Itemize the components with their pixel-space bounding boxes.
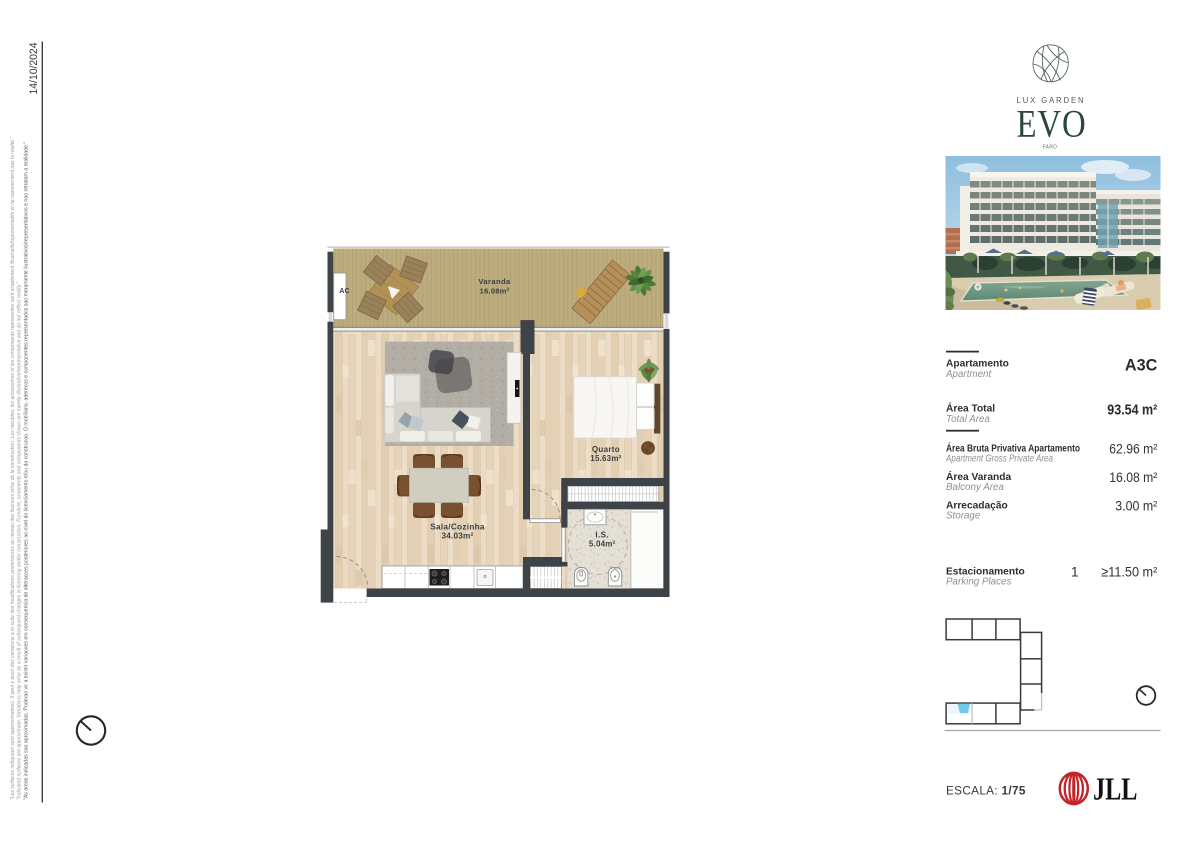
svg-text:Varanda: Varanda — [478, 277, 511, 286]
svg-text:15.63m²: 15.63m² — [590, 454, 621, 463]
svg-text:62.96 m²: 62.96 m² — [1109, 441, 1157, 457]
svg-text:Sala/Cozinha: Sala/Cozinha — [430, 523, 485, 532]
svg-text:1: 1 — [1071, 564, 1079, 580]
svg-text:Storage: Storage — [946, 511, 981, 522]
svg-text:"Indicated surfaces are approx: "Indicated surfaces are approximate. Var… — [17, 282, 23, 800]
svg-text:16.08m²: 16.08m² — [480, 287, 510, 296]
svg-text:Apartment Gross Private Area: Apartment Gross Private Area — [945, 454, 1053, 465]
svg-text:Total Area: Total Area — [946, 414, 990, 425]
svg-text:≥11.50 m²: ≥11.50 m² — [1101, 564, 1157, 580]
svg-text:AC: AC — [339, 286, 349, 295]
svg-text:3.00 m²: 3.00 m² — [1115, 498, 1157, 514]
svg-text:ESCALA: 1/75: ESCALA: 1/75 — [946, 784, 1026, 798]
svg-text:Balcony Area: Balcony Area — [946, 482, 1004, 493]
svg-text:16.08 m²: 16.08 m² — [1109, 469, 1157, 485]
svg-text:JLL: JLL — [1093, 772, 1138, 807]
svg-text:14/10/2024: 14/10/2024 — [28, 43, 40, 95]
svg-text:FARO: FARO — [1043, 145, 1058, 151]
svg-text:93.54 m²: 93.54 m² — [1107, 403, 1157, 419]
svg-text:"Les surfaces indiquees sont a: "Les surfaces indiquees sont approximati… — [10, 137, 16, 800]
svg-text:Apartment: Apartment — [945, 369, 992, 380]
svg-text:"As areas indicadas sao aproxi: "As areas indicadas sao aproximadas. Pod… — [24, 142, 30, 800]
svg-text:Quarto: Quarto — [592, 445, 620, 454]
svg-text:A3C: A3C — [1125, 357, 1158, 375]
svg-text:Área Total: Área Total — [946, 402, 995, 415]
svg-text:Parking Places: Parking Places — [946, 577, 1011, 588]
svg-text:EVO: EVO — [1017, 103, 1087, 146]
svg-text:5.04m²: 5.04m² — [589, 539, 616, 548]
svg-text:34.03m²: 34.03m² — [442, 532, 474, 541]
svg-text:I.S.: I.S. — [595, 530, 609, 539]
